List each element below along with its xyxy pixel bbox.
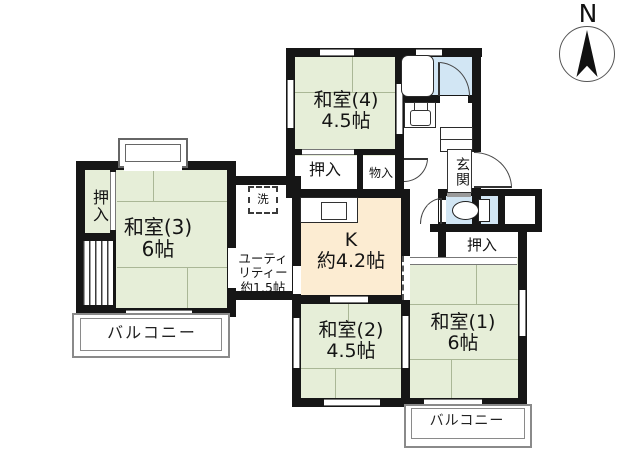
room-name: K — [300, 230, 402, 251]
bay-window-inner — [125, 144, 181, 162]
bay-window-opening — [124, 162, 182, 171]
room-size: 4.5帖 — [294, 111, 398, 132]
compass-n-label: N — [572, 0, 604, 27]
tatami-line — [187, 267, 188, 309]
washitsu4-label: 和室(4) 4.5帖 — [294, 90, 398, 131]
tatami-line — [335, 368, 336, 399]
tatami-line — [117, 201, 228, 202]
window — [287, 80, 294, 128]
room-size: 6帖 — [408, 333, 518, 354]
window — [519, 290, 526, 336]
oshiire-top-label: 押入 — [296, 161, 354, 178]
monoire-label: 物入 — [361, 167, 401, 180]
tatami-line — [408, 359, 518, 360]
wall-segment — [230, 176, 300, 185]
genkan-label: 玄関 — [450, 153, 469, 191]
window — [324, 399, 380, 406]
utility-line3: 約1.5帖 — [231, 281, 295, 295]
utility-label: ユーティ リティー 約1.5帖 — [231, 252, 295, 295]
floor-plan: 和室(4) 4.5帖 和室(3) 6帖 和室(2) 4.5帖 和室(1) 6帖 … — [0, 0, 640, 469]
tatami-line — [296, 368, 403, 369]
wall-segment — [286, 48, 482, 57]
tatami-line — [476, 263, 477, 305]
utility-line2: リティー — [231, 266, 295, 280]
laundry-label: 洗 — [248, 193, 278, 205]
tatami-line — [153, 168, 154, 202]
tatami-line — [117, 267, 228, 268]
toilet-door-arc — [420, 198, 442, 224]
oshiire-right-label: 押入 — [450, 237, 514, 253]
door-opening — [440, 96, 468, 103]
washitsu2-label: 和室(2) 4.5帖 — [296, 320, 406, 361]
open-passage — [402, 256, 410, 300]
kitchen-sink-icon — [300, 197, 358, 223]
room-name: 和室(2) — [296, 320, 406, 341]
toilet-icon — [452, 199, 494, 223]
genkan-step — [447, 193, 471, 197]
balcony-right-label: バルコニー — [410, 414, 524, 429]
oshiire-left-label: 押入 — [86, 180, 108, 232]
entrance-door-arc — [474, 152, 512, 188]
room-size: 4.5帖 — [296, 341, 406, 362]
room-name: 和室(3) — [98, 217, 218, 239]
tatami-line — [451, 359, 452, 399]
sliding-door — [330, 296, 368, 303]
room-name: 和室(4) — [294, 90, 398, 111]
kitchen-label: K 約4.2帖 — [300, 230, 402, 271]
tatami-line — [352, 57, 353, 92]
window — [320, 49, 354, 56]
balcony-left-label: バルコニー — [80, 324, 224, 341]
tatami-line — [408, 304, 518, 305]
room-size: 約4.2帖 — [300, 251, 402, 272]
washitsu3-label: 和室(3) 6帖 — [98, 217, 218, 260]
bathtub-icon — [401, 55, 434, 97]
room-name: 和室(1) — [408, 312, 518, 333]
sliding-door — [410, 257, 517, 265]
hall-door-arc — [404, 158, 428, 182]
washbasin-icon — [404, 102, 436, 128]
washitsu1-label: 和室(1) 6帖 — [408, 312, 518, 353]
utility-line1: ユーティ — [231, 252, 295, 266]
sliding-door — [302, 149, 354, 155]
room-size: 6帖 — [98, 239, 218, 261]
